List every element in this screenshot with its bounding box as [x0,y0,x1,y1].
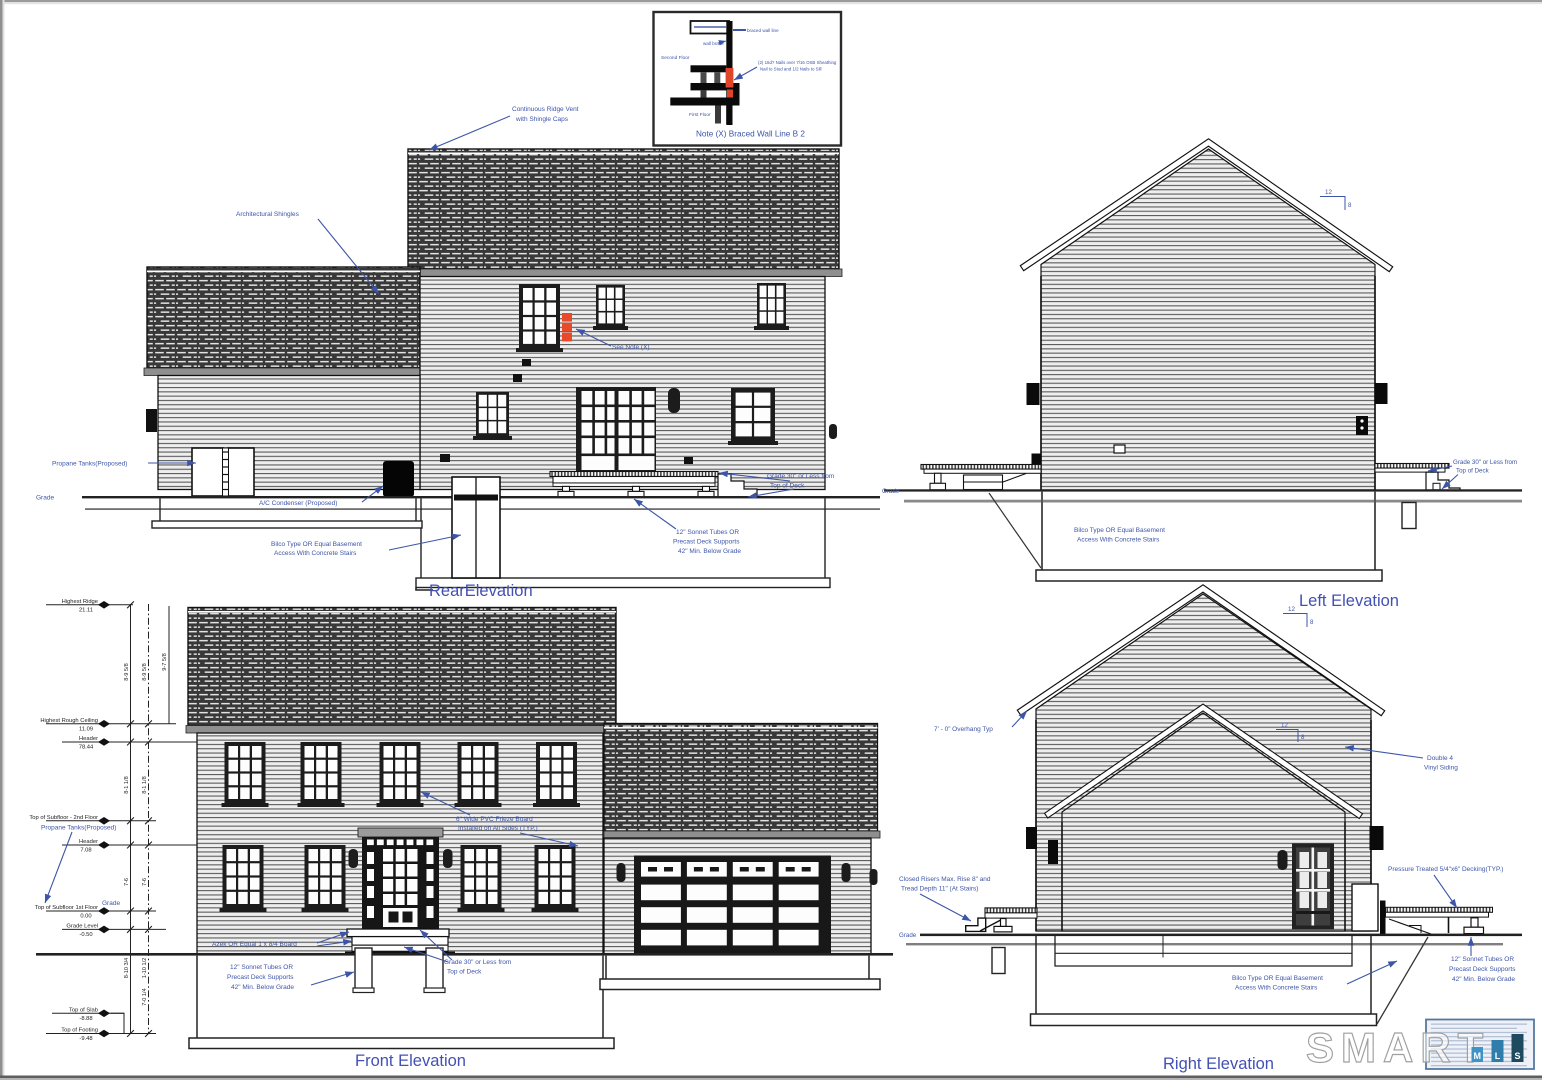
svg-text:Second Floor: Second Floor [661,55,690,61]
svg-text:Tread Depth 11" (At Stairs): Tread Depth 11" (At Stairs) [901,886,978,893]
svg-text:8: 8 [1301,734,1305,741]
svg-text:Nail to Stud and 1/2 Nails to: Nail to Stud and 1/2 Nails to Sill [760,67,822,72]
svg-text:Continuous Ridge Vent: Continuous Ridge Vent [512,106,579,113]
svg-text:Grade: Grade [899,932,917,939]
svg-text:Highest Ridge: Highest Ridge [62,599,98,605]
svg-text:Access With Concrete Stairs: Access With Concrete Stairs [1077,537,1160,544]
svg-text:Top of Deck: Top of Deck [447,969,482,976]
svg-text:12" Sonnet Tubes OR: 12" Sonnet Tubes OR [1451,956,1514,963]
svg-text:RearElevation: RearElevation [429,582,533,600]
svg-text:L: L [1495,1051,1501,1061]
svg-text:8: 8 [1348,202,1352,209]
svg-text:78.44: 78.44 [79,745,94,751]
svg-text:8-9 5/8: 8-9 5/8 [142,663,148,680]
svg-text:Bilco Type OR Equal Basement: Bilco Type OR Equal Basement [1232,975,1323,982]
svg-text:Grade: Grade [102,900,120,907]
svg-text:Grade 30" or Less from: Grade 30" or Less from [767,473,834,480]
svg-text:First Floor: First Floor [689,112,711,118]
svg-text:Grade: Grade [36,495,54,502]
svg-text:Top of Subfloor 1st Floor: Top of Subfloor 1st Floor [35,905,98,911]
svg-text:12: 12 [1288,606,1295,613]
svg-text:Propane Tanks(Proposed): Propane Tanks(Proposed) [41,825,116,832]
svg-text:Azek OR Equal 1 x 8/4 Board: Azek OR Equal 1 x 8/4 Board [212,941,297,948]
svg-text:Left Elevation: Left Elevation [1299,592,1399,610]
svg-text:Right Elevation: Right Elevation [1163,1055,1274,1073]
svg-text:Precast Deck Supports: Precast Deck Supports [673,539,740,546]
svg-text:12: 12 [1325,189,1332,196]
svg-text:SMART: SMART [1306,1024,1490,1071]
svg-text:1-10 1/2: 1-10 1/2 [142,958,148,979]
svg-text:Note (X) Braced Wall Line B 2: Note (X) Braced Wall Line B 2 [696,130,805,139]
svg-text:Installed on All Sides (TYP.): Installed on All Sides (TYP.) [458,825,538,832]
svg-text:Architectural Shingles: Architectural Shingles [236,211,300,218]
svg-text:Double 4: Double 4 [1427,755,1453,762]
svg-text:Grade 30" or Less from: Grade 30" or Less from [1453,459,1517,466]
svg-text:7-6: 7-6 [142,878,148,886]
svg-text:-9.48: -9.48 [79,1036,92,1042]
svg-text:6" Wide PVC Frieze Board: 6" Wide PVC Frieze Board [456,816,533,823]
svg-text:8: 8 [1310,619,1314,626]
svg-text:7-6: 7-6 [124,878,130,886]
svg-text:braced wall line: braced wall line [747,28,779,33]
svg-text:11.09: 11.09 [79,726,93,732]
svg-text:with Shingle Caps: with Shingle Caps [515,116,569,123]
svg-text:Header: Header [79,736,98,742]
svg-text:Grade 30" or Less from: Grade 30" or Less from [444,959,511,966]
svg-text:Bilco Type OR Equal Basement: Bilco Type OR Equal Basement [1074,527,1165,534]
svg-text:Top of Deck: Top of Deck [1456,468,1490,475]
svg-text:Vinyl Siding: Vinyl Siding [1424,765,1458,772]
svg-text:M: M [1473,1051,1481,1061]
svg-text:Top of Subfloor - 2nd Floor: Top of Subfloor - 2nd Floor [29,815,98,821]
svg-text:Highest Rough Ceiling: Highest Rough Ceiling [40,718,98,724]
svg-text:Grade: Grade [882,488,900,495]
svg-text:A/C Condenser (Proposed): A/C Condenser (Proposed) [259,500,337,507]
svg-text:9-7 5/8: 9-7 5/8 [162,653,168,670]
svg-text:12" Sonnet Tubes OR: 12" Sonnet Tubes OR [676,529,739,536]
svg-text:S: S [1514,1051,1520,1061]
svg-text:42" Min. Below Grade: 42" Min. Below Grade [231,984,294,991]
svg-text:-0.50: -0.50 [79,932,92,938]
svg-text:7-0 1/4: 7-0 1/4 [142,988,148,1005]
svg-text:Bilco Type OR Equal Basement: Bilco Type OR Equal Basement [271,541,362,548]
svg-text:42" Min. Below Grade: 42" Min. Below Grade [678,548,741,555]
svg-text:wall brace: wall brace [703,41,724,46]
svg-text:Pressure Treated 5/4"x6" Decki: Pressure Treated 5/4"x6" Decking(TYP.) [1388,866,1503,873]
svg-text:8-1 1/8: 8-1 1/8 [124,776,130,793]
svg-text:8-1 1/8: 8-1 1/8 [142,776,148,793]
svg-text:8-10 3/4: 8-10 3/4 [124,958,130,979]
svg-text:Header: Header [79,839,98,845]
svg-text:Top of Footing: Top of Footing [61,1028,98,1034]
svg-text:8-9 5/8: 8-9 5/8 [124,663,130,680]
svg-text:Front Elevation: Front Elevation [355,1052,466,1070]
svg-text:Top of Deck: Top of Deck [770,483,805,490]
svg-text:-8.88: -8.88 [79,1016,92,1022]
svg-text:See Note (X): See Note (X) [612,344,650,351]
svg-text:12" Sonnet Tubes OR: 12" Sonnet Tubes OR [230,964,293,971]
svg-text:42" Min. Below Grade: 42" Min. Below Grade [1452,976,1515,983]
svg-text:21.11: 21.11 [79,607,93,613]
svg-text:0.00: 0.00 [80,914,91,920]
svg-text:Access With Concrete Stairs: Access With Concrete Stairs [274,550,357,557]
svg-text:7’ - 0” Overhang Typ: 7’ - 0” Overhang Typ [934,726,993,733]
svg-text:Precast Deck Supports: Precast Deck Supports [1449,966,1516,973]
svg-text:7.08: 7.08 [80,848,91,854]
svg-text:Grade Level: Grade Level [66,924,98,930]
svg-text:Closed Risers Max. Rise 8" and: Closed Risers Max. Rise 8" and [899,876,991,883]
svg-text:Top of Slab: Top of Slab [69,1008,98,1014]
svg-text:(2) 16d? Nails over 7/16 OSB S: (2) 16d? Nails over 7/16 OSB Sheathing [758,60,837,65]
svg-text:12: 12 [1281,722,1288,729]
svg-text:Access With Concrete Stairs: Access With Concrete Stairs [1235,985,1318,992]
svg-text:Propane Tanks(Proposed): Propane Tanks(Proposed) [52,461,127,468]
svg-text:Precast Deck Supports: Precast Deck Supports [227,974,294,981]
